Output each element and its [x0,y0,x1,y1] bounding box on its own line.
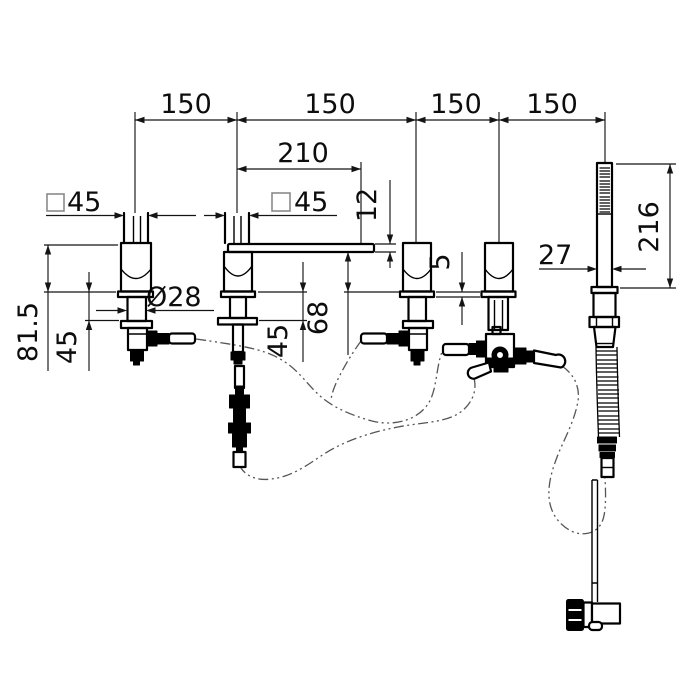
shower-spray-face [600,168,611,212]
diverter-hose [239,378,475,479]
bath-mixer-dimension-drawing: 150 150 150 150 210 45 45 Ø28 81.5 [0,0,700,700]
square-symbol [272,193,290,211]
hose-elbow-fitting [567,480,621,631]
dim-label-210: 210 [277,138,329,169]
dim-label-sq45-spout: 45 [294,187,328,218]
dim-label-dia28: Ø28 [146,282,202,313]
dim-under-deck-45-spout: 45 [258,262,307,362]
pop-up-rod [229,366,251,467]
dim-square-45-left: 45 [46,187,196,219]
dim-label-45-left: 45 [52,330,83,364]
dim-label-12: 12 [352,188,383,222]
dim-label-span1: 150 [160,89,212,120]
dim-label-span3: 150 [430,89,482,120]
hose-union-right [399,331,409,346]
dim-flange-5: 5 [425,252,480,325]
spout [218,213,374,364]
dim-label-span2: 150 [304,89,356,120]
hose-nipple-left [169,334,195,344]
tailpiece-left [131,350,144,361]
hose-union-left [147,331,157,346]
flexible-hoses [196,339,606,534]
supply-hose-right [331,341,361,400]
tailpiece-right [411,350,424,361]
hose-nipple-right [361,334,387,344]
diverter-outlet [534,351,565,368]
diverter-left-nipple [443,344,469,355]
diverter-spigot [468,363,491,379]
dim-label-68: 68 [303,301,334,335]
dim-blade-12: 12 [352,180,396,268]
square-symbol [47,194,64,211]
dim-label-45-spout: 45 [263,324,294,358]
cold-valve-handle [361,243,434,365]
spout-blade [228,244,374,252]
dim-label-27: 27 [538,240,572,271]
elbow-body [592,604,620,624]
dim-label-81-5: 81.5 [13,302,44,362]
hand-shower [590,163,620,347]
dim-label-216: 216 [634,201,665,253]
dim-label-span4: 150 [526,89,578,120]
dim-label-sq45-left: 45 [67,187,101,218]
shower-hose-corrugated [596,347,620,477]
technical-drawing-page: 150 150 150 150 210 45 45 Ø28 81.5 [0,0,700,700]
dim-diameter-28: Ø28 [96,282,214,314]
elbow-knurled-nut [567,600,584,631]
dim-under-deck-45-left: 45 [52,272,119,371]
dim-grip-27: 27 [538,240,646,272]
dim-label-5: 5 [425,253,456,270]
